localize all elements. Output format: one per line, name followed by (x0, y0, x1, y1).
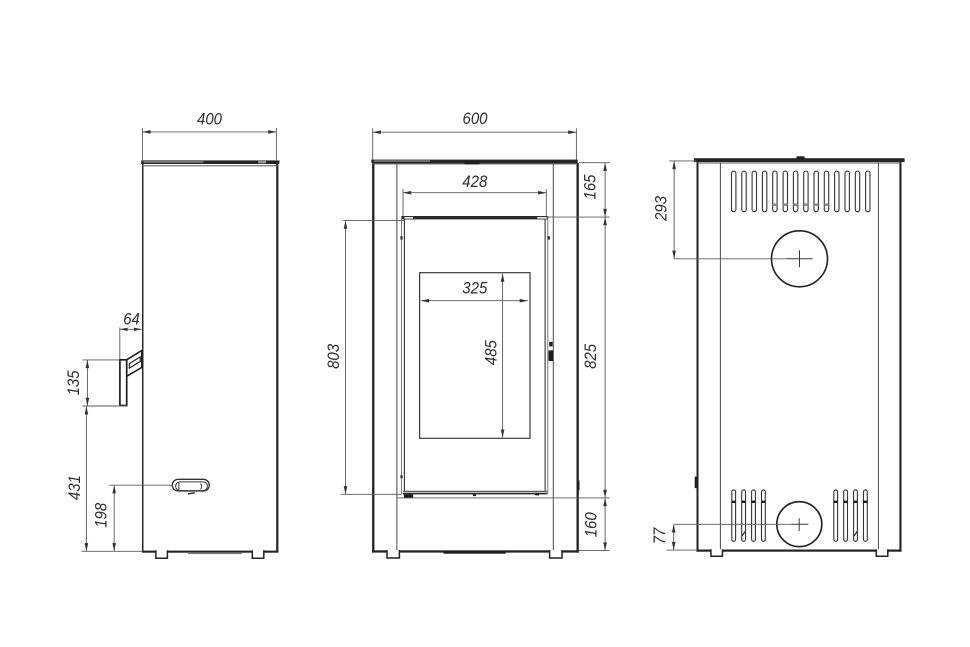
svg-text:400: 400 (197, 110, 222, 129)
svg-text:77: 77 (650, 527, 669, 544)
svg-text:325: 325 (462, 278, 487, 297)
svg-text:428: 428 (462, 172, 487, 191)
svg-text:160: 160 (582, 512, 601, 537)
svg-text:431: 431 (65, 475, 84, 500)
svg-text:803: 803 (324, 343, 343, 368)
svg-text:825: 825 (581, 343, 600, 368)
svg-text:293: 293 (651, 195, 670, 221)
svg-text:64: 64 (123, 309, 140, 328)
svg-text:600: 600 (463, 109, 488, 128)
svg-text:135: 135 (64, 370, 83, 395)
svg-text:198: 198 (91, 502, 110, 527)
svg-text:485: 485 (481, 340, 500, 365)
svg-text:165: 165 (581, 174, 600, 199)
